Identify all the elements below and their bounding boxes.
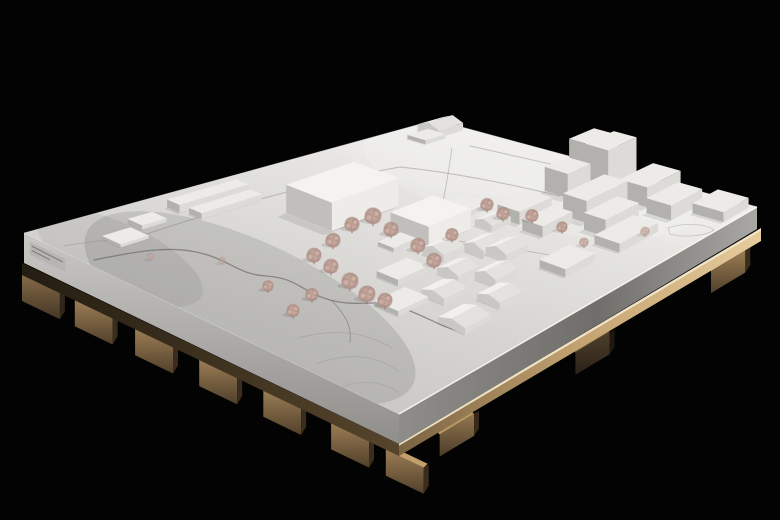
tree-canopy — [313, 249, 321, 257]
tree-canopy — [584, 239, 589, 244]
tree-canopy — [561, 222, 567, 228]
tree-canopy — [267, 281, 273, 287]
tree-canopy — [349, 274, 358, 283]
tree-canopy — [486, 199, 493, 206]
tree-canopy — [433, 254, 441, 262]
tree-canopy — [222, 258, 226, 262]
tree-canopy — [384, 294, 392, 302]
tree-canopy — [390, 223, 398, 231]
tree-canopy — [150, 254, 154, 258]
tree-canopy — [330, 260, 338, 268]
tree-canopy — [417, 239, 425, 247]
tree-canopy — [531, 210, 538, 217]
tree-canopy — [451, 229, 458, 236]
tree-canopy — [351, 218, 359, 226]
tree-canopy — [366, 287, 375, 296]
tree-canopy — [645, 228, 650, 233]
screenshot-root: White monochrome site model: two large n… — [0, 0, 780, 520]
architectural-model-scene — [0, 0, 780, 520]
tree-canopy — [292, 305, 299, 312]
tree-canopy — [332, 234, 340, 242]
tree-canopy — [502, 208, 509, 215]
tree-canopy — [311, 289, 318, 296]
tree-canopy — [372, 209, 381, 218]
